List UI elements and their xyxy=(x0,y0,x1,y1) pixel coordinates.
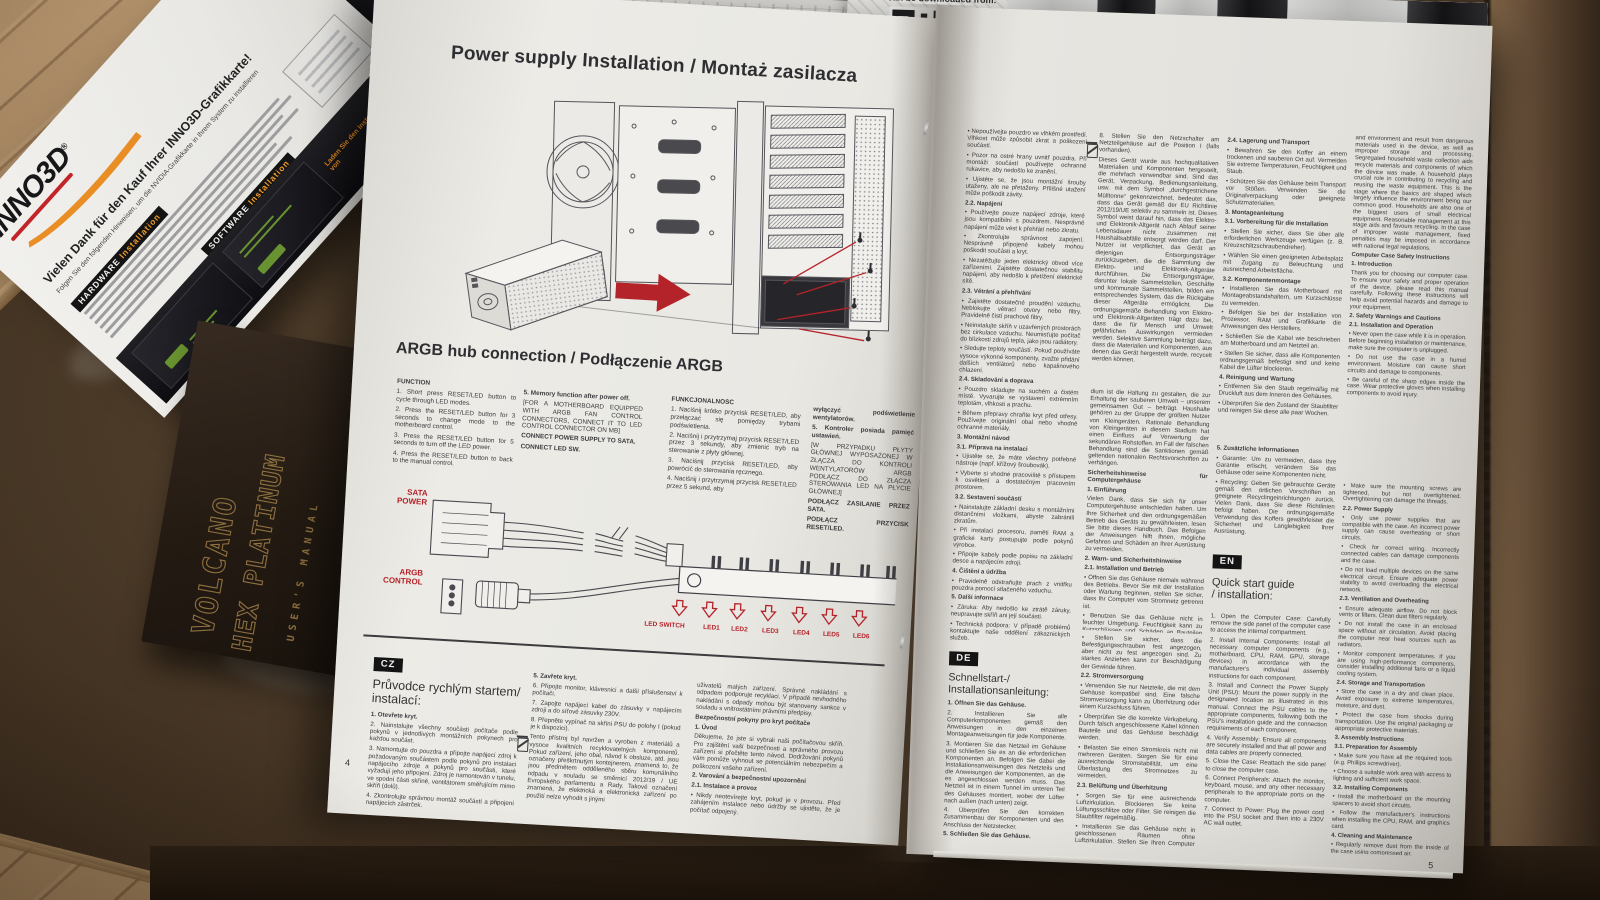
psu-installation-diagram xyxy=(450,69,925,365)
right-col1-cz-assembly: 3. Montážní návod3.1. Příprava na instal… xyxy=(950,433,1077,645)
led-arrows xyxy=(672,600,867,626)
en-quickstart-steps: 1. Open the Computer Case: Carefully rem… xyxy=(1203,612,1331,852)
right-col3-de-info: 5. Zusätzliche Informationen• Garantie: … xyxy=(1213,444,1336,548)
right-col2-de-safety: dium ist die Haltung zu gestalten, die z… xyxy=(1082,388,1210,634)
cz-column-2: 5. Zavřete kryt.6. Připojte monitor, klá… xyxy=(525,672,683,830)
right-col3-de-assembly: 2.4. Lagerung und Transport• Bewahren Si… xyxy=(1217,137,1348,447)
en-language-badge: EN xyxy=(1212,550,1242,569)
cz-column-3: uživatelů malých zařízení. Správné naklá… xyxy=(689,682,847,840)
de-quickstart-heading: Schnellstart-/ Installationsanleitung: xyxy=(948,671,1050,699)
right-col4-en-safety-2: • Make sure the mounting screws are tigh… xyxy=(1331,483,1462,857)
pcie-diagram-lines xyxy=(295,27,360,94)
crossed-out-bin-icon xyxy=(517,737,529,752)
right-col2-de-recycling: 8. Stellen Sie den Netzschalter am Netzt… xyxy=(1091,132,1220,388)
manual-right-page: • Nepoužívejte pouzdro ve vlhkém prostře… xyxy=(906,6,1492,873)
manual-open-spread: Power supply Installation / Montaż zasil… xyxy=(333,0,1500,882)
cz-column-1: 1. Otevřete kryt.2. Nainstalujte všechny… xyxy=(365,711,519,819)
cz-quickstart-heading: Průvodce rychlým startem/ instalací: xyxy=(371,677,520,713)
de-quickstart-steps: 1. Öffnen Sie das Gehäuse.2. Installiere… xyxy=(943,699,1068,841)
cz-language-badge: CZ xyxy=(373,653,403,673)
crossed-out-bin-icon xyxy=(1087,144,1098,158)
manual-left-page: Power supply Installation / Montaż zasil… xyxy=(327,0,946,845)
page-number-right: 5 xyxy=(1428,860,1433,870)
page-number-left: 4 xyxy=(345,758,351,768)
sata-power-label: SATA POWER xyxy=(363,486,428,507)
cardboard-wall-right xyxy=(1484,0,1600,900)
right-col4-en-safety: and environment and result from dangerou… xyxy=(1344,135,1474,485)
en-quickstart-heading: Quick start guide / installation: xyxy=(1211,576,1294,603)
argb-control-label: ARGB CONTROL xyxy=(352,566,423,588)
photo-stage: can be downloaded from: xyxy=(0,0,1600,900)
right-col2-de-power: • Stellen Sie sicher, dass die Befestigu… xyxy=(1075,634,1202,848)
